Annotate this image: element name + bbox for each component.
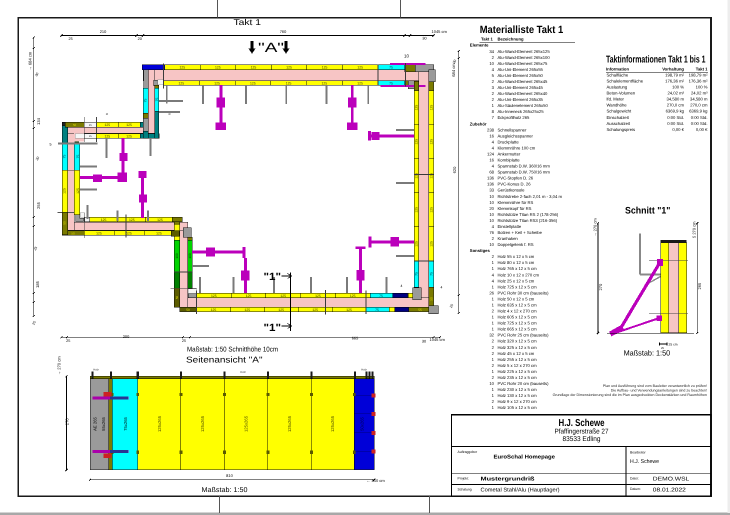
svg-text:Schalgewicht: Schalgewicht [607,109,633,114]
svg-text:6369,9 kg: 6369,9 kg [666,109,685,114]
svg-text:125: 125 [211,308,217,312]
svg-text:Holz 5 x 12 x 270 cm: Holz 5 x 12 x 270 cm [498,363,538,368]
svg-text:125: 125 [156,231,162,235]
svg-text:125: 125 [315,294,321,298]
svg-text:"1": "1" [264,322,282,334]
svg-text:Alu-Wand-Element 265x75: Alu-Wand-Element 265x75 [498,61,549,66]
svg-text:Datum:: Datum: [630,487,641,491]
svg-text:125: 125 [286,81,292,85]
svg-text:10: 10 [489,218,494,223]
svg-text:Alu-Uni-Element 265x55: Alu-Uni-Element 265x55 [498,67,544,72]
svg-text:20: 20 [489,206,494,211]
svg-text:Kombiplatte: Kombiplatte [498,158,521,163]
svg-text:Richtstrebe 2-fach 2,01 m - 3,: Richtstrebe 2-fach 2,01 m - 3,04 m [498,194,563,199]
svg-text:Alu-Säulenelement 265x50: Alu-Säulenelement 265x50 [498,103,549,108]
svg-text:5 270 cm: 5 270 cm [692,221,697,238]
svg-text:Holz 230 x 12 x 5 cm: Holz 230 x 12 x 5 cm [498,387,538,392]
svg-text:125: 125 [278,308,284,312]
svg-text:10: 10 [489,194,494,199]
svg-text:75: 75 [415,272,419,276]
svg-text:Datei:: Datei: [630,476,639,480]
svg-text:AE 265: AE 265 [93,416,98,430]
svg-text:684 cm: 684 cm [451,63,456,77]
svg-text:Alu-Wand-Element 265x40: Alu-Wand-Element 265x40 [498,91,549,96]
svg-text:08.01.2022: 08.01.2022 [653,487,686,493]
svg-text:210: 210 [100,29,107,34]
svg-text:EuroSchal Homepage: EuroSchal Homepage [494,454,556,460]
svg-text:Vorhaltung: Vorhaltung [662,67,684,72]
svg-text:Maßstab: 1:50 Schnitthöhe 10: Maßstab: 1:50 Schnitthöhe 10cm [187,346,278,354]
svg-text:125: 125 [429,241,433,247]
svg-text:Holz 225 x 12 x 5 cm: Holz 225 x 12 x 5 cm [498,369,538,374]
svg-text:0:00 Std.: 0:00 Std. [691,115,708,120]
svg-text:Alu-Inneneck 265x25x25: Alu-Inneneck 265x25x25 [498,109,545,114]
svg-text:125: 125 [280,294,286,298]
svg-text:Druckplatte: Druckplatte [498,139,520,144]
svg-text:Schnitt "1": Schnitt "1" [625,206,670,217]
svg-text:134: 134 [36,117,41,124]
svg-text:125: 125 [129,218,135,222]
svg-text:Taktinformationen Takt 1 bis: Taktinformationen Takt 1 bis 1 [606,55,706,66]
svg-text:125: 125 [104,123,110,127]
svg-text:55x265: 55x265 [101,416,106,430]
svg-text:198,79 m²: 198,79 m² [665,72,684,77]
svg-text:75: 75 [155,98,159,102]
svg-text:75: 75 [379,294,383,298]
svg-text:50: 50 [175,296,179,300]
svg-text:75: 75 [143,99,147,103]
svg-text:Spannstab D.W. 750/16 mm: Spannstab D.W. 750/16 mm [498,170,551,175]
svg-text:125: 125 [214,81,220,85]
svg-text:PVC Rohr 20 cm (bauseits): PVC Rohr 20 cm (bauseits) [498,381,550,386]
svg-text:50: 50 [73,123,77,127]
svg-text:34: 34 [489,49,494,54]
svg-text:125x265: 125x265 [244,415,249,432]
svg-text:Takt 1: Takt 1 [234,17,262,27]
svg-text:125: 125 [250,81,256,85]
svg-text:125: 125 [286,66,292,70]
svg-text:0:00 Std.: 0:00 Std. [667,121,684,126]
svg-text:0:00 Std.: 0:00 Std. [691,121,708,126]
svg-text:125: 125 [126,231,132,235]
svg-text:76: 76 [489,230,494,235]
svg-text:Seitenansicht "A": Seitenansicht "A" [186,355,263,365]
svg-text:10: 10 [489,200,494,205]
svg-text:Alu-Wand-Element 265x45: Alu-Wand-Element 265x45 [498,79,549,84]
svg-text:68: 68 [489,170,494,175]
svg-text:Wandhöhe: Wandhöhe [607,103,628,108]
svg-text:620: 620 [452,166,457,173]
svg-text:Holz: Holz [93,367,99,371]
svg-text:125: 125 [126,134,132,138]
svg-text:Takt 1: Takt 1 [696,67,708,72]
svg-text:Holz 320 x 12 x 5 cm: Holz 320 x 12 x 5 cm [498,339,538,344]
svg-text:125x265: 125x265 [200,415,205,432]
svg-text:← 810 cm: ← 810 cm [367,478,386,483]
svg-text:665: 665 [352,336,359,341]
svg-text:Beton-Volumen: Beton-Volumen [607,91,636,96]
svg-text:Ankermutter: Ankermutter [498,151,521,156]
svg-text:50: 50 [429,297,433,301]
svg-text:PVC-Konus D. 26: PVC-Konus D. 26 [498,182,532,187]
svg-text:Elemente: Elemente [470,43,489,48]
svg-text:75x265: 75x265 [123,416,128,430]
svg-text:125: 125 [415,241,419,247]
svg-text:125: 125 [63,188,67,194]
svg-text:125: 125 [429,139,433,145]
svg-text:→ 270 cm: → 270 cm [592,218,597,237]
svg-text:125: 125 [357,66,363,70]
svg-text:100 %: 100 % [696,85,708,90]
svg-text:Klemmkopf für RS: Klemmkopf für RS [498,206,532,211]
svg-text:24,02 m³: 24,02 m³ [691,91,708,96]
svg-text:125: 125 [415,105,419,111]
svg-text:Auslastung: Auslastung [607,85,628,90]
svg-text:Richtstütze Titan RS3 (216-35: Richtstütze Titan RS3 (216-356) [498,218,558,223]
svg-text:125: 125 [429,173,433,179]
svg-text:Bearbeiter: Bearbeiter [630,451,647,455]
svg-text:4: 4 [441,286,443,290]
svg-text:50: 50 [186,308,190,312]
svg-text:125: 125 [96,231,102,235]
svg-text:Holz 325 x 12 x 5 cm: Holz 325 x 12 x 5 cm [498,345,538,350]
svg-text:125: 125 [350,294,356,298]
svg-text:Spannstab D.W. 360/16 mm: Spannstab D.W. 360/16 mm [498,164,551,169]
svg-text:125: 125 [179,66,185,70]
svg-text:1045 cm: 1045 cm [432,29,448,34]
svg-text:PVC-Stopfen D. 26: PVC-Stopfen D. 26 [498,176,534,181]
svg-text:Die Aufbau- und Verwendungsanl: Die Aufbau- und Verwendungsanleitungen s… [611,388,707,392]
svg-text:Holz 55 x 12 x 5 cm: Holz 55 x 12 x 5 cm [498,254,535,259]
svg-text:26: 26 [489,290,494,295]
svg-text:Klemmröhre für RS: Klemmröhre für RS [498,200,534,205]
svg-text:810: 810 [226,473,233,478]
svg-text:16: 16 [489,158,494,163]
svg-text:125: 125 [246,294,252,298]
svg-text:125: 125 [157,218,163,222]
svg-text:55: 55 [418,308,422,312]
svg-text:10: 10 [489,242,494,247]
svg-text:300: 300 [123,334,130,339]
svg-text:Grundlage der Dimensionierung: Grundlage der Dimensionierung sind die i… [553,393,707,397]
svg-text:H.J. Schewe: H.J. Schewe [630,459,659,465]
svg-text:Holz 4 x 12 x 270 cm: Holz 4 x 12 x 270 cm [498,309,538,314]
svg-text:Holz 725 x 12 x 5 cm: Holz 725 x 12 x 5 cm [498,321,538,326]
svg-text:Schnellspanner: Schnellspanner [498,127,527,132]
svg-text:125x265: 125x265 [287,415,292,432]
svg-text:185: 185 [35,280,40,287]
svg-text:Plan und Ausführung sind vom B: Plan und Ausführung sind vom Bauleiter v… [603,384,707,388]
svg-text:125x265: 125x265 [157,415,162,432]
svg-text:5: 5 [50,143,52,147]
svg-text:100 %: 100 % [672,85,684,90]
svg-text:Cometal Stahl/Alu (Hauptlager): Cometal Stahl/Alu (Hauptlager) [481,487,560,493]
svg-text:125: 125 [126,123,132,127]
svg-text:50x265: 50x265 [360,416,365,430]
svg-text:125: 125 [429,207,433,213]
svg-text:125: 125 [211,294,217,298]
svg-text:Holz: Holz [361,367,367,371]
svg-text:270: 270 [65,418,70,426]
svg-text:176,36 m²: 176,36 m² [665,78,684,83]
svg-text:→ 684 cm: → 684 cm [28,51,33,70]
svg-text:Alu-Uni-Element 265x45: Alu-Uni-Element 265x45 [498,85,544,90]
svg-text:50: 50 [63,221,67,225]
svg-text:100: 100 [188,253,192,259]
svg-text:Information: Information [606,67,629,72]
svg-text:125: 125 [215,66,221,70]
svg-text:Einschalzeit: Einschalzeit [607,115,630,120]
svg-text:Alu-Wand-Element 265x100: Alu-Wand-Element 265x100 [498,55,551,60]
svg-text:PVC Rohr 25 cm (bauseits): PVC Rohr 25 cm (bauseits) [498,333,550,338]
svg-text:25: 25 [182,339,186,343]
svg-text:Sonstiges: Sonstiges [470,248,491,253]
svg-text:Takt 1: Takt 1 [481,37,493,42]
svg-text:Holz 25 x 12 x 5 cm: Holz 25 x 12 x 5 cm [498,278,535,283]
svg-text:Schalelementfläche: Schalelementfläche [607,78,644,83]
svg-text:→ 270 cm: → 270 cm [57,356,62,375]
svg-text:Doppelgelenk f. RS: Doppelgelenk f. RS [498,242,534,247]
svg-text:75: 75 [63,155,67,159]
svg-text:Gerüstkonsole: Gerüstkonsole [498,188,526,193]
svg-text:Schalung: Schalung [458,487,472,491]
svg-text:Bolzen + Keil + Scheibe: Bolzen + Keil + Scheibe [498,230,543,235]
svg-text:125: 125 [104,134,110,138]
svg-text:75: 75 [429,272,433,276]
svg-text:Holz 45 x 12 x 5 cm: Holz 45 x 12 x 5 cm [498,351,535,356]
svg-text:125: 125 [101,218,107,222]
svg-text:Schalfläche: Schalfläche [607,72,629,77]
svg-text:125x265: 125x265 [330,415,335,432]
svg-text:124: 124 [487,151,495,156]
svg-text:Materialliste Takt 1: Materialliste Takt 1 [480,24,564,36]
svg-text:lfd. Meter: lfd. Meter [607,97,625,102]
svg-text:238: 238 [487,127,495,132]
svg-text:125: 125 [251,66,257,70]
svg-text:75: 75 [389,66,393,70]
svg-text:Auftraggeber: Auftraggeber [458,450,478,454]
svg-text:15: 15 [89,123,93,127]
svg-text:198,79 m²: 198,79 m² [689,72,708,77]
svg-text:Holz 235 x 12 x 5 cm: Holz 235 x 12 x 5 cm [498,375,538,380]
svg-text:25: 25 [66,339,70,343]
svg-text:"1": "1" [264,271,282,283]
svg-text:Holz 605 x 12 x 5 cm: Holz 605 x 12 x 5 cm [498,315,538,320]
svg-text:25: 25 [68,37,72,41]
svg-text:Richtstütze Titan RS 2 (178-25: Richtstütze Titan RS 2 (178-256) [498,212,559,217]
svg-text:Mustergrundriß: Mustergrundriß [481,476,536,482]
svg-text:Holz 80 x 12 x 5 cm: Holz 80 x 12 x 5 cm [498,260,535,265]
svg-text:125: 125 [415,139,419,145]
svg-text:125: 125 [312,308,318,312]
svg-text:DEMO.WSL: DEMO.WSL [653,476,690,482]
svg-text:Ausgleichsspanner: Ausgleichsspanner [498,133,534,138]
svg-text:Holz 9 x 12 x 270 cm: Holz 9 x 12 x 270 cm [498,399,538,404]
svg-text:136: 136 [487,176,495,181]
svg-text:6369,9 kg: 6369,9 kg [689,109,708,114]
svg-text:Alu-Uni-Element 265x35: Alu-Uni-Element 265x35 [498,97,544,102]
svg-text:33: 33 [489,188,494,193]
svg-text:Projekt:: Projekt: [458,476,470,480]
svg-text:125: 125 [245,308,251,312]
svg-text:34,580 m: 34,580 m [690,97,708,102]
svg-text:Holz: Holz [240,370,246,374]
svg-text:4: 4 [401,284,403,288]
svg-text:Holz 635 x 12 x 5 cm: Holz 635 x 12 x 5 cm [498,302,538,307]
svg-text:125: 125 [415,173,419,179]
svg-text:32: 32 [489,333,494,338]
svg-text:125: 125 [322,66,328,70]
svg-text:125: 125 [179,81,185,85]
svg-text:270,0 cm: 270,0 cm [667,103,685,108]
svg-text:Alu-Wand-Element 265x125: Alu-Wand-Element 265x125 [498,49,551,54]
svg-text:125: 125 [415,207,419,213]
svg-text:0,00 €: 0,00 € [672,127,684,132]
svg-text:Schalungspreis: Schalungspreis [607,127,636,132]
svg-text:83533 Edling: 83533 Edling [563,435,601,443]
svg-text:125: 125 [429,105,433,111]
svg-text:10: 10 [489,61,494,66]
svg-text:75: 75 [375,308,379,312]
svg-text:125: 125 [346,308,352,312]
svg-text:125: 125 [357,81,363,85]
svg-text:PVC Rohr 30 cm (bauseits): PVC Rohr 30 cm (bauseits) [498,290,550,295]
svg-text:270: 270 [598,283,603,290]
svg-text:176,36 m²: 176,36 m² [689,78,708,83]
svg-text:0:00 Std.: 0:00 Std. [667,115,684,120]
svg-text:760: 760 [280,29,287,34]
svg-text:Holz 130 x 12 x 5 cm: Holz 130 x 12 x 5 cm [498,393,538,398]
svg-text:270,0 cm: 270,0 cm [690,103,708,108]
svg-text:Holz 665 x 12 x 5 cm: Holz 665 x 12 x 5 cm [498,327,538,332]
svg-text:10: 10 [489,212,494,217]
svg-text:Holz 10 x 12 x 270 cm: Holz 10 x 12 x 270 cm [498,272,540,277]
svg-text:Eckprofilholz 265: Eckprofilholz 265 [498,115,531,120]
svg-text:Einstellplatte: Einstellplatte [498,224,522,229]
svg-text:Klemmröhre 100 cm: Klemmröhre 100 cm [498,145,536,150]
svg-text:20: 20 [138,37,142,41]
svg-text:Holz 255 x 12 x 5 cm: Holz 255 x 12 x 5 cm [498,357,538,362]
svg-text:125: 125 [322,81,328,85]
svg-text:50: 50 [71,231,75,235]
svg-text:136: 136 [487,182,495,187]
svg-text:100: 100 [175,253,179,259]
svg-text:Holz 105 x 12 x 5 cm: Holz 105 x 12 x 5 cm [498,405,538,410]
svg-text:34,580 m: 34,580 m [667,97,685,102]
svg-text:Holz 725 x 12 x 5 cm: Holz 725 x 12 x 5 cm [498,284,538,289]
svg-text:Holz 765 x 12 x 5 cm: Holz 765 x 12 x 5 cm [498,266,538,271]
svg-text:Holz 50 x 12 x 5 cm: Holz 50 x 12 x 5 cm [498,296,535,301]
svg-text:Kranhaken: Kranhaken [498,236,519,241]
svg-text:24,02 m³: 24,02 m³ [667,91,684,96]
svg-text:Alu-Uni-Element 265x50: Alu-Uni-Element 265x50 [498,73,544,78]
svg-text:75: 75 [389,81,393,85]
svg-text:Maßstab: 1:50: Maßstab: 1:50 [202,486,248,494]
svg-text:16: 16 [489,133,494,138]
svg-text:10: 10 [489,381,494,386]
svg-text:"A": "A" [258,40,284,55]
svg-text:30: 30 [422,37,426,41]
svg-text:25 cm: 25 cm [669,343,678,347]
svg-text:125: 125 [76,188,80,194]
svg-text:255: 255 [36,201,41,208]
svg-text:10: 10 [404,54,409,59]
svg-text:265: 265 [697,282,702,289]
svg-text:Ausschalzeit: Ausschalzeit [607,121,631,126]
svg-text:H.J. Schewe: H.J. Schewe [559,418,605,429]
svg-text:Pfaffingerstraße 27: Pfaffingerstraße 27 [555,428,609,436]
svg-text:Maßstab: 1:50: Maßstab: 1:50 [624,349,671,358]
svg-text:Bezeichnung: Bezeichnung [498,37,524,42]
svg-text:0,00 €: 0,00 € [696,127,708,132]
svg-text:1045 cm: 1045 cm [430,337,446,342]
svg-text:75: 75 [76,155,80,159]
svg-text:Zubehör: Zubehör [470,121,487,126]
svg-text:30: 30 [422,339,426,343]
